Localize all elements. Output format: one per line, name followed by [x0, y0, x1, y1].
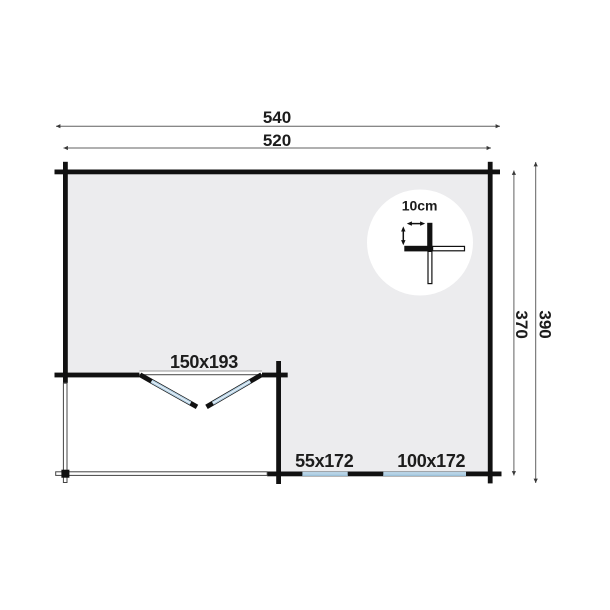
svg-text:55x172: 55x172: [295, 451, 354, 471]
svg-text:520: 520: [263, 131, 291, 150]
svg-text:100x172: 100x172: [397, 451, 465, 471]
svg-text:540: 540: [263, 108, 291, 127]
svg-text:10cm: 10cm: [402, 197, 438, 213]
svg-text:370: 370: [512, 310, 531, 338]
svg-text:150x193: 150x193: [170, 352, 238, 372]
svg-text:390: 390: [535, 310, 554, 338]
